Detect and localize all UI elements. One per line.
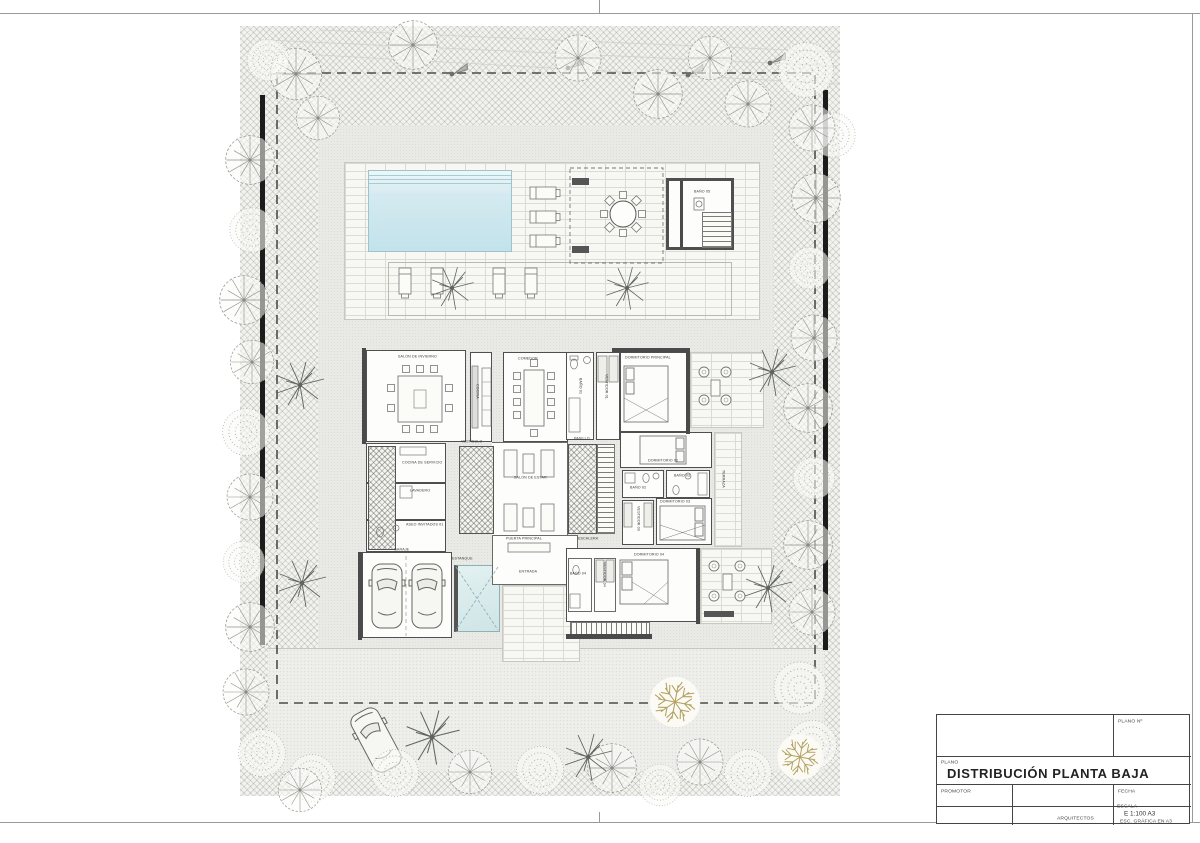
site-wall-right <box>823 90 828 650</box>
exterior-steps-wall <box>566 634 652 639</box>
patio-service <box>368 446 396 550</box>
patio-left <box>459 446 494 534</box>
room-bath-04 <box>568 558 592 612</box>
promoter-cell: PROMOTOR <box>937 785 1013 807</box>
label-vestibule: VESTÍBULO <box>461 440 482 444</box>
side-terrace <box>714 432 742 547</box>
main-stairs <box>597 444 615 534</box>
label-bath-03: BAÑO 03 <box>674 474 690 478</box>
label-dressing-03: VESTIDOR 03 <box>636 506 640 531</box>
label-entrance: ENTRADA <box>519 570 537 574</box>
fold-mark-top <box>599 0 600 13</box>
fold-mark-bottom <box>599 812 600 823</box>
wall-accent-2 <box>612 348 690 352</box>
wall-accent-3 <box>686 352 690 434</box>
pool-infinity-edge <box>369 172 511 184</box>
label-bath-02: BAÑO 02 <box>630 486 646 490</box>
label-guest-wc: ASEO INVITADOS 01 <box>406 523 443 527</box>
label-winter-lounge: SALÓN DE INVIERNO <box>398 355 437 359</box>
label-terrace: TERRAZA <box>721 470 725 488</box>
room-bath-01 <box>566 352 594 440</box>
stair-core <box>568 444 597 534</box>
label-service-kitchen: COCINA DE SERVICIO <box>402 461 442 465</box>
label-pool-bath: BAÑO 05 <box>694 190 710 194</box>
room-bedroom-03 <box>656 498 712 545</box>
label-kitchen: COCINA <box>475 384 479 399</box>
bedroom04-terrace <box>700 548 772 624</box>
plan-number-label: PLANO Nº <box>1118 718 1142 724</box>
architects-cell: ARQUITECTOS <box>1013 807 1114 825</box>
label-garage: GARAJE <box>394 548 409 552</box>
room-dining <box>503 352 568 442</box>
scale-label: ESCALA <box>1117 803 1137 809</box>
driveway <box>268 648 824 771</box>
promoter-label: PROMOTOR <box>941 788 971 794</box>
room-garage <box>362 552 452 638</box>
label-bedroom-02: DORMITORIO 02 <box>648 459 678 463</box>
label-main-door: PUERTA PRINCIPAL <box>506 537 542 541</box>
label-dining: COMEDOR <box>518 357 538 361</box>
label-laundry: LAVADERO <box>410 489 430 493</box>
pool-bath-wall <box>680 181 683 247</box>
title-block-plan-number-cell: PLANO Nº <box>1114 715 1191 757</box>
plan-label: PLANO <box>941 759 958 765</box>
lounger-strip <box>388 262 732 316</box>
site-wall-left <box>260 95 265 645</box>
wall-accent-4 <box>358 552 362 640</box>
title-block-title-cell: PLANO DISTRIBUCIÓN PLANTA BAJA <box>937 757 1191 785</box>
label-master-bedroom: DORMITORIO PRINCIPAL <box>625 356 671 360</box>
room-winter-lounge <box>366 350 466 442</box>
drawing-title: DISTRIBUCIÓN PLANTA BAJA <box>947 766 1149 781</box>
empty-cell <box>937 807 1013 825</box>
label-dressing-01: VESTIDOR 01 <box>604 374 608 399</box>
scale-value: E 1:100 A3 <box>1124 810 1155 817</box>
label-pond: ESTANQUE <box>452 557 473 561</box>
label-bath-04: BAÑO 04 <box>570 572 586 576</box>
promoter-value-cell <box>1013 785 1114 807</box>
master-terrace <box>690 352 764 428</box>
label-hallway: PASILLO <box>574 437 590 441</box>
scale-note: ESC. GRÁFICA EN A3 <box>1120 818 1172 824</box>
room-bath-02 <box>622 470 664 498</box>
room-kitchen <box>470 352 492 442</box>
pool-bath-stairs <box>702 212 732 248</box>
room-master-bedroom <box>620 352 688 432</box>
label-bedroom-03: DORMITORIO 03 <box>660 500 690 504</box>
title-block-logo-cell <box>937 715 1114 757</box>
label-bedroom-04: DORMITORIO 04 <box>634 553 664 557</box>
wall-accent-5 <box>696 548 700 624</box>
label-dressing-04: VESTIDOR 04 <box>602 562 606 587</box>
title-block: PLANO Nº PLANO DISTRIBUCIÓN PLANTA BAJA … <box>936 714 1190 824</box>
sheet-border-top <box>0 13 1200 14</box>
scale-cell: ESCALA E 1:100 A3 ESC. GRÁFICA EN A3 <box>1114 807 1191 825</box>
label-stairs: ESCALERA <box>578 537 598 541</box>
date-label: FECHA <box>1118 788 1135 794</box>
label-living: SALÓN DE ESTAR <box>514 476 547 480</box>
drawing-sheet: SALÓN DE INVIERNO COCINA COMEDOR VESTÍBU… <box>0 0 1200 843</box>
architects-label: ARQUITECTOS <box>1057 815 1094 821</box>
sheet-border-right <box>1192 13 1193 823</box>
wall-accent-1 <box>362 348 366 444</box>
label-bath-01: BAÑO 01 <box>578 378 582 394</box>
